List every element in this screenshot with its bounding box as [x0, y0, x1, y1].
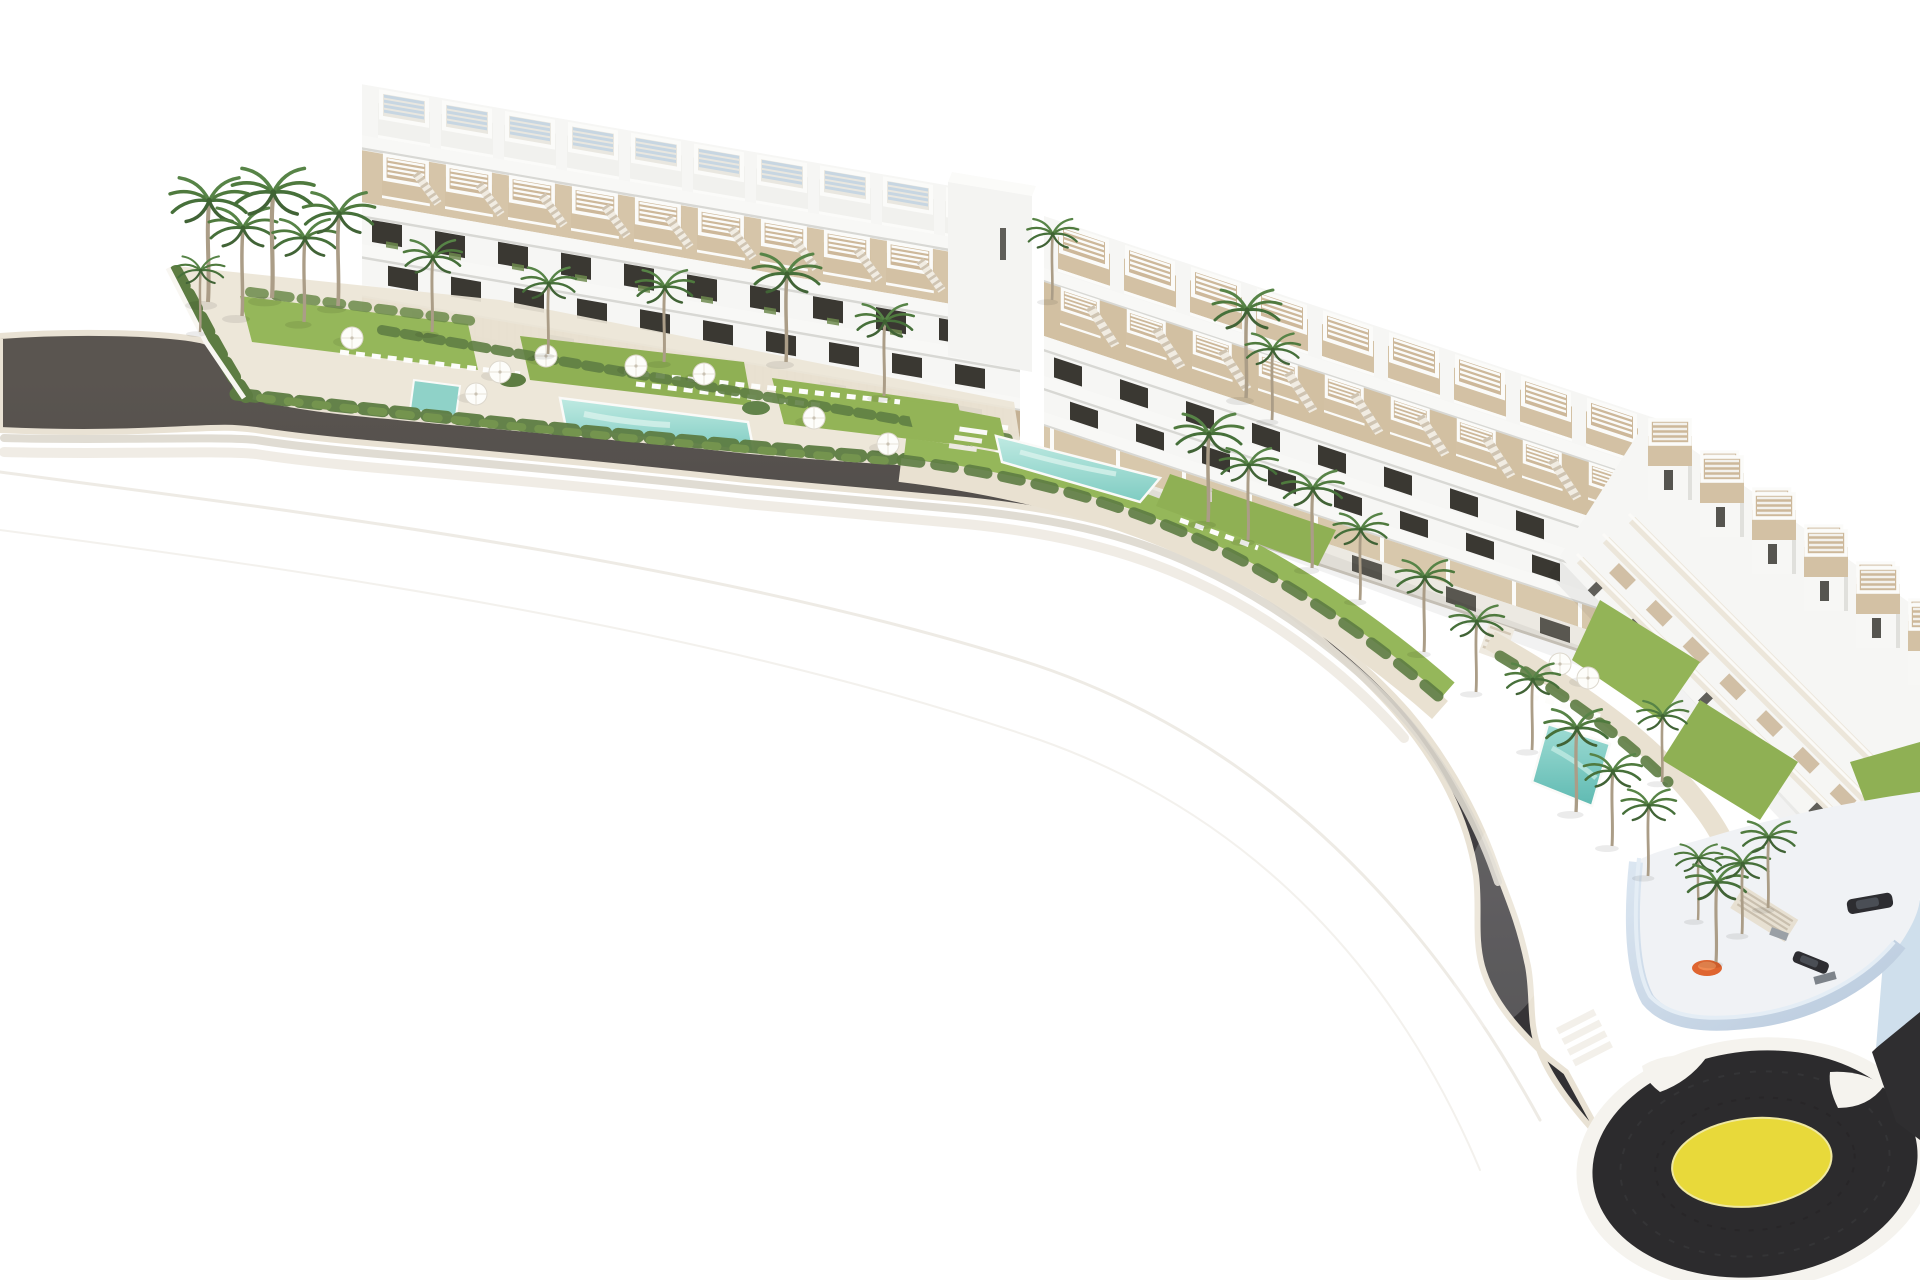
- corner-tower: [948, 172, 1036, 372]
- render-canvas: [0, 0, 1920, 1280]
- aerial-render: [0, 0, 1920, 1280]
